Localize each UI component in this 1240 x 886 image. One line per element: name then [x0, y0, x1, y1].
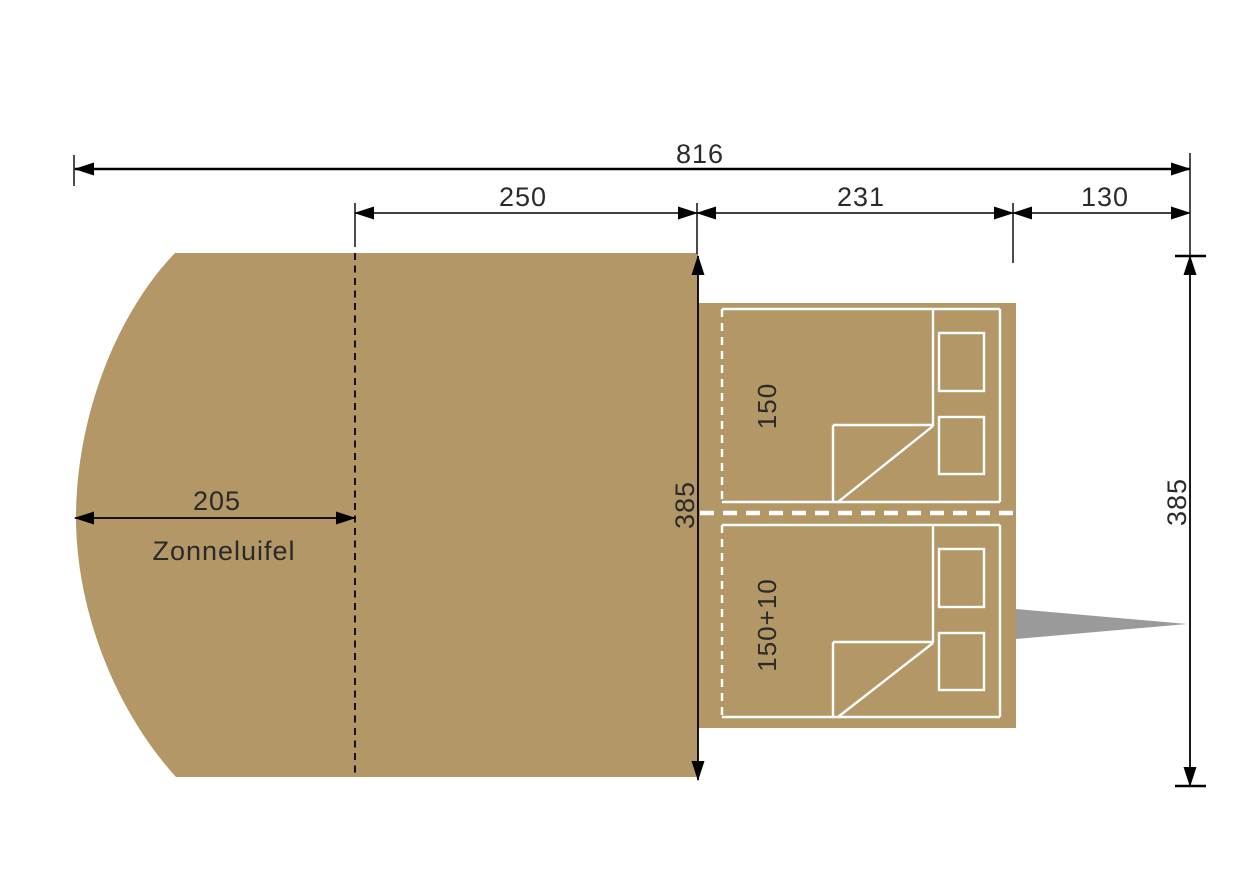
drawbar-hitch [1016, 609, 1187, 639]
dimension-depth-left-value: 385 [670, 481, 700, 529]
dimension-depth-right: 385 [1162, 256, 1206, 786]
trailer-box [698, 303, 1016, 728]
dimension-body-value: 231 [837, 182, 885, 212]
dimension-awning-value: 205 [193, 486, 241, 516]
dimension-tent-value: 250 [499, 182, 547, 212]
awning-name-label: Zonneluifel [152, 536, 295, 566]
dimension-drawbar-value: 130 [1081, 182, 1129, 212]
dimension-depth-right-value: 385 [1162, 478, 1192, 526]
bed-bottom-size-label: 150+10 [752, 578, 782, 671]
awning-tent-body [76, 253, 698, 777]
floorplan-drawing: 150 150+10 816 [0, 0, 1240, 886]
bed-top-size-label: 150 [752, 383, 782, 429]
dimension-total-length-value: 816 [676, 139, 724, 169]
dimension-total-length: 816 [74, 139, 1190, 186]
floorplan-canvas: 150 150+10 816 [0, 0, 1240, 886]
